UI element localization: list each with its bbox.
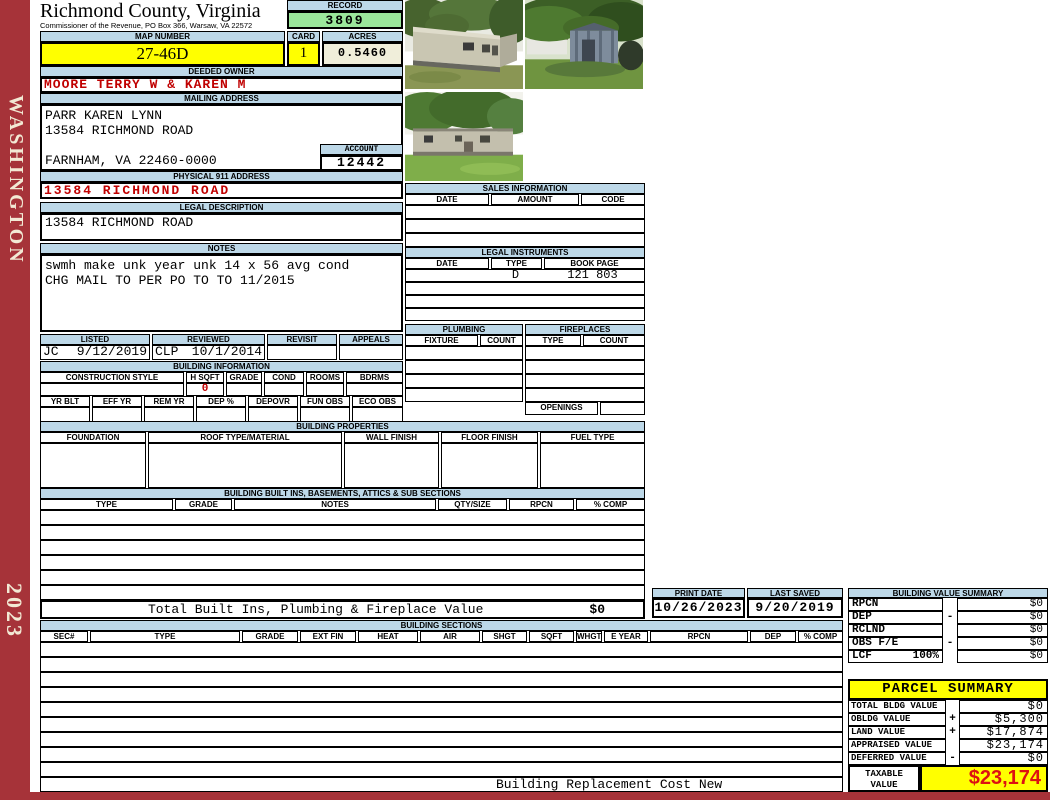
h-sqft-value: 0 (186, 383, 224, 396)
card-label: CARD (287, 31, 320, 42)
openings-value (600, 402, 645, 415)
col-wall-finish: WALL FINISH (344, 432, 439, 443)
construction-style-value (40, 383, 184, 396)
col-foundation: FOUNDATION (40, 432, 146, 443)
bvs-dep-label: DEP (852, 612, 872, 623)
building-value-summary-label: BUILDING VALUE SUMMARY (848, 588, 1048, 598)
empty-row (525, 374, 645, 388)
bvs-rpcn-label: RPCN (852, 599, 878, 610)
building-information-label: BUILDING INFORMATION (40, 361, 403, 372)
col-rooms: ROOMS (306, 372, 344, 383)
empty-row (40, 570, 645, 585)
parcel-summary-label: PARCEL SUMMARY (848, 679, 1048, 700)
col-bs-heat: HEAT (358, 631, 418, 642)
legal-description-value: 13584 RICHMOND ROAD (40, 213, 403, 241)
bvs-row-dep: DEP - $0 (848, 611, 1048, 624)
col-roof-type-material: ROOF TYPE/MATERIAL (148, 432, 342, 443)
sales-header-row: DATE AMOUNT CODE (405, 194, 645, 205)
building-properties-value-row (40, 443, 645, 488)
ps-row-appraised: APPRAISED VALUE $23,174 (848, 739, 1048, 752)
building-sections-header-row: SEC# TYPE GRADE EXT FIN HEAT AIR SHGT SQ… (40, 631, 843, 642)
col-depovr: DEPOVR (248, 396, 298, 407)
physical-911-value: 13584 RICHMOND ROAD (40, 182, 403, 199)
built-ins-total-row: Total Built Ins, Plumbing & Fireplace Va… (40, 600, 645, 619)
empty-row (40, 717, 843, 732)
print-info-block: PRINT DATE 10/26/2023 LAST SAVED 9/20/20… (652, 588, 843, 618)
map-number-value: 27-46D (40, 42, 285, 66)
building-sections-rows: Building Replacement Cost New (40, 642, 843, 792)
col-construction-style: CONSTRUCTION STYLE (40, 372, 184, 383)
eco-obs-value (352, 407, 403, 422)
mailing-address-label: MAILING ADDRESS (40, 93, 403, 104)
record-number: 3809 (287, 11, 403, 29)
print-date-label: PRINT DATE (652, 588, 745, 598)
col-sale-code: CODE (581, 194, 645, 205)
eff-yr-value (92, 407, 142, 422)
appeals-label: APPEALS (339, 334, 403, 345)
fireplaces-rows (525, 346, 645, 402)
notes-box: swmh make unk year unk 14 x 56 avg cond … (40, 254, 403, 332)
empty-row (40, 642, 843, 657)
empty-row (405, 205, 645, 219)
building-properties-label: BUILDING PROPERTIES (40, 421, 645, 432)
bottom-border-strip (0, 792, 1050, 800)
col-yr-blt: YR BLT (40, 396, 90, 407)
empty-row (40, 657, 843, 672)
fireplaces-header-row: TYPE COUNT (525, 335, 645, 346)
col-bi-notes: NOTES (234, 499, 436, 510)
empty-row (405, 282, 645, 295)
ps-row-taxable: TAXABLE VALUE $23,174 (848, 765, 1048, 792)
empty-row (405, 295, 645, 308)
col-li-date: DATE (405, 258, 489, 269)
empty-row (40, 510, 645, 525)
built-ins-rows (40, 510, 645, 600)
empty-row (40, 585, 645, 600)
notes-label: NOTES (40, 243, 403, 254)
ps-obldg-label: OBLDG VALUE (848, 713, 946, 726)
map-header-row: MAP NUMBER CARD ACRES (40, 31, 403, 42)
col-floor-finish: FLOOR FINISH (441, 432, 538, 443)
fun-obs-value (300, 407, 350, 422)
bvs-obs-label: OBS F/E (852, 638, 898, 649)
acres-value: 0.5460 (322, 42, 403, 66)
col-sale-amount: AMOUNT (491, 194, 579, 205)
taxable-value-amount: $23,174 (920, 765, 1048, 792)
plumbing-header-row: FIXTURE COUNT (405, 335, 523, 346)
col-bs-type: TYPE (90, 631, 240, 642)
col-rem-yr: REM YR (144, 396, 194, 407)
col-bs-air: AIR (420, 631, 480, 642)
yr-blt-value (40, 407, 90, 422)
building-properties-header-row: FOUNDATION ROOF TYPE/MATERIAL WALL FINIS… (40, 432, 645, 443)
account-number: 12442 (320, 155, 403, 171)
col-bs-whgt: WHGT (576, 631, 602, 642)
empty-row (525, 388, 645, 402)
last-saved-block: LAST SAVED 9/20/2019 (747, 588, 843, 618)
revisit-value (267, 345, 337, 360)
empty-row (405, 346, 523, 360)
empty-row (405, 388, 523, 402)
reviewed-date: 10/1/2014 (192, 346, 262, 359)
roof-type-value (148, 443, 342, 488)
county-subtitle: Commissioner of the Revenue, PO Box 366,… (40, 21, 287, 30)
ps-deferred-label: DEFERRED VALUE (848, 752, 946, 765)
col-bi-pct-comp: % COMP (576, 499, 645, 510)
building-replacement-note: Building Replacement Cost New (40, 777, 843, 792)
listed-date: 9/12/2019 (77, 346, 147, 359)
rem-yr-value (144, 407, 194, 422)
bvs-rclnd-value: $0 (957, 624, 1048, 637)
col-fun-obs: FUN OBS (300, 396, 350, 407)
legal-description-label: LEGAL DESCRIPTION (40, 202, 403, 213)
col-bi-grade: GRADE (175, 499, 232, 510)
reviewed-by: CLP (155, 346, 178, 359)
col-fixture: FIXTURE (405, 335, 478, 346)
foundation-value (40, 443, 146, 488)
built-ins-total-label: Total Built Ins, Plumbing & Fireplace Va… (42, 603, 589, 617)
floor-finish-value (441, 443, 538, 488)
map-number-label: MAP NUMBER (40, 31, 285, 42)
col-bs-ext-fin: EXT FIN (300, 631, 356, 642)
cond-value (264, 383, 304, 396)
bvs-obs-sign: - (943, 637, 957, 650)
col-cond: COND (264, 372, 304, 383)
empty-row (40, 747, 843, 762)
empty-row (40, 555, 645, 570)
empty-row (525, 360, 645, 374)
empty-row (405, 233, 645, 247)
col-bi-type: TYPE (40, 499, 173, 510)
photo-mobile-home-side (405, 92, 523, 181)
bvs-row-obs-fe: OBS F/E - $0 (848, 637, 1048, 650)
notes-line-2: CHG MAIL TO PER PO TO TO 11/2015 (45, 273, 401, 288)
listed-value: JC 9/12/2019 (40, 345, 150, 360)
wall-finish-value (344, 443, 439, 488)
bvs-dep-sign: - (943, 611, 957, 624)
col-sale-date: DATE (405, 194, 489, 205)
empty-row (40, 687, 843, 702)
ps-total-bldg-sign (946, 700, 959, 713)
fuel-type-value (540, 443, 645, 488)
building-info-value-row-2 (40, 407, 403, 422)
empty-row (40, 672, 843, 687)
col-bs-grade: GRADE (242, 631, 298, 642)
physical-911-label: PHYSICAL 911 ADDRESS (40, 171, 403, 182)
photo-shed-under-tree (525, 0, 643, 89)
plumbing-label: PLUMBING (405, 324, 523, 335)
bvs-lcf-sign (943, 650, 957, 663)
notes-line-1: swmh make unk year unk 14 x 56 avg cond (45, 258, 401, 273)
record-label: RECORD (287, 0, 403, 11)
col-fuel-type: FUEL TYPE (540, 432, 645, 443)
year-sidebar: WASHINGTON 2023 (0, 0, 30, 800)
bvs-row-lcf: LCF100% $0 (848, 650, 1048, 663)
built-ins-header-row: TYPE GRADE NOTES QTY/SIZE RPCN % COMP (40, 499, 645, 510)
taxable-value-label: TAXABLE VALUE (848, 765, 920, 792)
ps-deferred-value: $0 (959, 752, 1048, 765)
legal-instruments-label: LEGAL INSTRUMENTS (405, 247, 645, 258)
col-fireplace-count: COUNT (583, 335, 645, 346)
col-bi-qty-size: QTY/SIZE (438, 499, 507, 510)
plumbing-column: PLUMBING FIXTURE COUNT (405, 324, 523, 415)
col-bs-pct-comp: % COMP (798, 631, 843, 642)
ps-appraised-sign (946, 739, 959, 752)
parcel-card-right-column: SALES INFORMATION DATE AMOUNT CODE LEGAL… (405, 0, 645, 415)
ps-row-deferred: DEFERRED VALUE - $0 (848, 752, 1048, 765)
col-bs-e-year: E YEAR (604, 631, 648, 642)
openings-label: OPENINGS (525, 402, 598, 415)
ps-land-label: LAND VALUE (848, 726, 946, 739)
parcel-summary: PARCEL SUMMARY TOTAL BLDG VALUE $0 OBLDG… (848, 679, 1048, 792)
county-title: Richmond County, Virginia (40, 1, 287, 21)
grade-value (226, 383, 262, 396)
built-ins-label: BUILDING BUILT INS, BASEMENTS, ATTICS & … (40, 488, 645, 499)
col-eff-yr: EFF YR (92, 396, 142, 407)
col-bdrms: BDRMS (346, 372, 403, 383)
col-fixture-count: COUNT (480, 335, 523, 346)
mailing-line-2: 13584 RICHMOND ROAD (45, 123, 401, 138)
empty-row (40, 762, 843, 777)
listed-by: JC (43, 346, 59, 359)
fireplaces-column: FIREPLACES TYPE COUNT OPENINGS (525, 324, 645, 415)
mailing-address-box: PARR KAREN LYNN 13584 RICHMOND ROAD FARN… (40, 104, 403, 171)
ps-deferred-sign: - (946, 752, 959, 765)
plumbing-rows (405, 346, 523, 402)
bvs-dep-value: $0 (957, 611, 1048, 624)
revisit-label: REVISIT (267, 334, 337, 345)
building-info-header-row-2: YR BLT EFF YR REM YR DEP % DEPOVR FUN OB… (40, 396, 403, 407)
print-date-block: PRINT DATE 10/26/2023 (652, 588, 745, 618)
col-bs-dep: DEP (750, 631, 796, 642)
empty-row (525, 346, 645, 360)
bvs-row-rpcn: RPCN $0 (848, 598, 1048, 611)
ps-total-bldg-label: TOTAL BLDG VALUE (848, 700, 946, 713)
empty-row (405, 308, 645, 321)
county-header: Richmond County, Virginia Commissioner o… (40, 0, 287, 31)
col-bs-rpcn: RPCN (650, 631, 748, 642)
account-label: ACCOUNT (320, 144, 403, 155)
bvs-rpcn-sign (943, 598, 957, 611)
property-photos (405, 0, 645, 181)
card-value: 1 (287, 42, 320, 66)
fireplaces-label: FIREPLACES (525, 324, 645, 335)
building-sections-table: BUILDING SECTIONS SEC# TYPE GRADE EXT FI… (40, 620, 843, 792)
col-fireplace-type: TYPE (525, 335, 581, 346)
col-bs-shgt: SHGT (482, 631, 527, 642)
col-bi-rpcn: RPCN (509, 499, 574, 510)
bvs-rpcn-value: $0 (957, 598, 1048, 611)
ps-land-sign: + (946, 726, 959, 739)
bvs-obs-value: $0 (957, 637, 1048, 650)
account-block: ACCOUNT 12442 (320, 144, 403, 171)
empty-row (405, 219, 645, 233)
building-value-summary: BUILDING VALUE SUMMARY RPCN $0 DEP - $0 … (848, 588, 1048, 663)
dep-pct-value (196, 407, 246, 422)
reviewed-value: CLP 10/1/2014 (152, 345, 265, 360)
col-dep-pct: DEP % (196, 396, 246, 407)
bvs-rclnd-sign (943, 624, 957, 637)
empty-row (40, 540, 645, 555)
building-info-header-row-1: CONSTRUCTION STYLE H SQFT GRADE COND ROO… (40, 372, 403, 383)
col-bs-sqft: SQFT (529, 631, 574, 642)
appeals-value (339, 345, 403, 360)
empty-row (405, 374, 523, 388)
openings-row: OPENINGS (525, 402, 645, 415)
print-date-value: 10/26/2023 (652, 598, 745, 618)
col-grade: GRADE (226, 372, 262, 383)
empty-row (40, 732, 843, 747)
bvs-rclnd-label: RCLND (852, 625, 885, 636)
built-ins-total-value: $0 (589, 602, 643, 617)
last-saved-label: LAST SAVED (747, 588, 843, 598)
parcel-card-left-column: Richmond County, Virginia Commissioner o… (40, 0, 403, 422)
review-value-row: JC 9/12/2019 CLP 10/1/2014 (40, 345, 403, 360)
photo-mobile-home-angle (405, 0, 523, 89)
building-info-value-row-1: 0 (40, 383, 403, 396)
bvs-row-rclnd: RCLND $0 (848, 624, 1048, 637)
li-date-value (406, 270, 490, 281)
sidebar-tax-year: 2023 (3, 583, 27, 639)
bdrms-value (346, 383, 403, 396)
empty-row (40, 702, 843, 717)
photo-empty-slot (525, 92, 643, 181)
depovr-value (248, 407, 298, 422)
col-eco-obs: ECO OBS (352, 396, 403, 407)
li-book-page-value: 121 803 (541, 270, 644, 281)
record-block: RECORD 3809 (287, 0, 403, 31)
empty-row (405, 360, 523, 374)
ps-appraised-label: APPRAISED VALUE (848, 739, 946, 752)
bvs-lcf-label: LCF (852, 651, 872, 662)
sales-rows (405, 205, 645, 247)
plumbing-fireplaces-section: PLUMBING FIXTURE COUNT FIREPLACES TYPE C… (405, 324, 645, 415)
acres-label: ACRES (322, 31, 403, 42)
map-value-row: 27-46D 1 0.5460 (40, 42, 403, 66)
rooms-value (306, 383, 344, 396)
legal-instrument-row: D 121 803 (405, 269, 645, 282)
building-properties-section: BUILDING PROPERTIES FOUNDATION ROOF TYPE… (40, 421, 645, 619)
ps-obldg-sign: + (946, 713, 959, 726)
deeded-owner-value: MOORE TERRY W & KAREN M (40, 77, 403, 93)
sidebar-county-name: WASHINGTON (3, 95, 27, 265)
mailing-line-1: PARR KAREN LYNN (45, 108, 401, 123)
building-sections-label-text: BUILDING SECTIONS (137, 621, 747, 630)
bvs-lcf-pct: 100% (913, 651, 939, 662)
li-type-value: D (490, 270, 541, 281)
last-saved-value: 9/20/2019 (747, 598, 843, 618)
building-sections-label: BUILDING SECTIONS (40, 620, 843, 631)
bvs-lcf-value: $0 (957, 650, 1048, 663)
legal-instruments-rows: D 121 803 (405, 269, 645, 321)
empty-row (40, 525, 645, 540)
col-h-sqft: H SQFT (186, 372, 224, 383)
col-sec-num: SEC# (40, 631, 88, 642)
deeded-owner-label: DEEDED OWNER (40, 66, 403, 77)
sales-information-label: SALES INFORMATION (405, 183, 645, 194)
